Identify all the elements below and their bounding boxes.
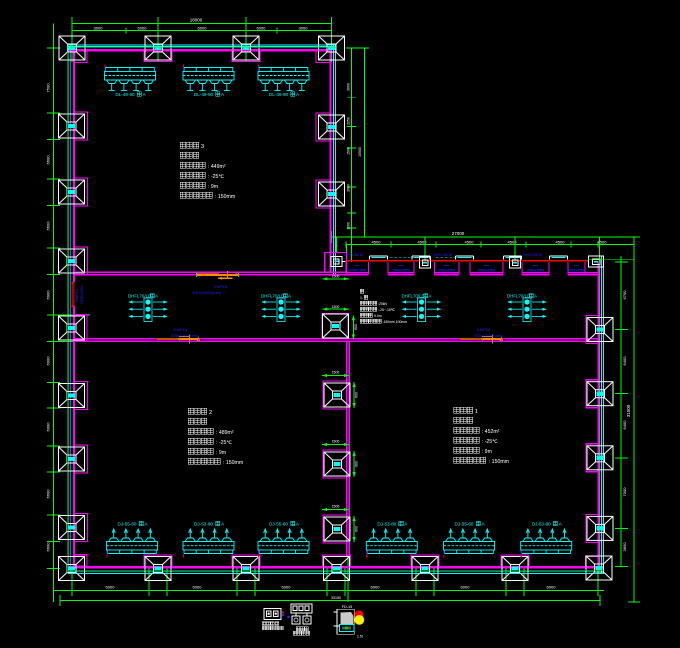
svg-text:▪▪▪▪: ▪▪▪▪ (398, 264, 403, 268)
svg-text:6400: 6400 (622, 356, 627, 366)
svg-text:: 489m²: : 489m² (216, 430, 234, 436)
svg-text:6000: 6000 (198, 25, 208, 30)
svg-text:600: 600 (355, 526, 359, 532)
svg-text:DL-49-90: DL-49-90 (269, 92, 289, 97)
svg-text:1500: 1500 (347, 147, 351, 155)
svg-text:6000: 6000 (461, 585, 471, 590)
svg-text:600: 600 (354, 324, 358, 330)
svg-text:DHFL70/LD: DHFL70/LD (402, 294, 425, 299)
svg-text:600: 600 (355, 392, 359, 398)
svg-text:3000: 3000 (94, 25, 104, 30)
svg-text:6000: 6000 (106, 585, 116, 590)
svg-text:DHFL70/LD: DHFL70/LD (128, 294, 151, 299)
svg-text:A: A (155, 294, 158, 299)
svg-text:2000x2500: 2000x2500 (438, 269, 456, 273)
svg-text:DHFL35/10: DHFL35/10 (433, 253, 452, 257)
svg-text:KMPD1: KMPD1 (214, 284, 229, 289)
svg-text:1500: 1500 (332, 440, 340, 444)
svg-text:33150: 33150 (331, 596, 341, 600)
svg-text:DJ-53-80: DJ-53-80 (532, 522, 551, 527)
svg-text:4500: 4500 (372, 239, 382, 244)
svg-text::20kN: :20kN (378, 302, 387, 306)
svg-text:3800: 3800 (622, 542, 627, 552)
svg-text:: 150mm: : 150mm (223, 460, 243, 466)
svg-text:: -25℃: : -25℃ (216, 440, 232, 446)
svg-text:▪▪▪▪: ▪▪▪▪ (444, 264, 449, 268)
svg-text:DHFL70/LD: DHFL70/LD (261, 294, 284, 299)
svg-text:6900: 6900 (46, 290, 51, 300)
svg-text:6600: 6600 (46, 542, 51, 552)
svg-text:DHFL35/10: DHFL35/10 (523, 253, 542, 257)
svg-text:2000x2500: 2000x2500 (392, 269, 410, 273)
svg-text:A: A (288, 294, 291, 299)
svg-text:2000x2500: 2000x2500 (348, 269, 366, 273)
svg-text:6000: 6000 (257, 25, 267, 30)
svg-text:DJ-55-60: DJ-55-60 (269, 522, 288, 527)
svg-text:1.: 1. (360, 296, 363, 300)
svg-text:4500: 4500 (598, 239, 608, 244)
svg-text:6000: 6000 (547, 585, 557, 590)
svg-text:31500: 31500 (626, 404, 631, 417)
svg-text:DJ-53-80: DJ-53-80 (377, 522, 396, 527)
svg-text:1.5t: 1.5t (357, 635, 363, 639)
svg-text:1500: 1500 (332, 275, 340, 279)
svg-text:▪▪▪▪: ▪▪▪▪ (533, 264, 538, 268)
svg-text:4500: 4500 (465, 239, 475, 244)
svg-text::: : (365, 290, 366, 294)
svg-text:1500x2500: 1500x2500 (80, 286, 84, 305)
svg-text:▪▪▪▪: ▪▪▪▪ (484, 264, 489, 268)
svg-text:: 150mm: : 150mm (489, 459, 509, 465)
svg-text:6000: 6000 (371, 585, 381, 590)
svg-text:3000: 3000 (299, 25, 309, 30)
svg-text:4500: 4500 (418, 239, 428, 244)
svg-text:FD-15: FD-15 (342, 605, 353, 609)
svg-text:1500: 1500 (332, 505, 340, 509)
svg-text:10500: 10500 (358, 147, 362, 157)
svg-text:: 452m²: : 452m² (482, 429, 500, 435)
svg-text:3000x2500(mm)~~: 3000x2500(mm)~~ (192, 290, 226, 295)
svg-text:600: 600 (355, 461, 359, 467)
svg-text:2000x2500: 2000x2500 (568, 269, 586, 273)
svg-text:3000: 3000 (347, 184, 351, 192)
svg-text:A: A (534, 294, 537, 299)
svg-text:3: 3 (201, 144, 204, 150)
svg-text:6000: 6000 (193, 585, 203, 590)
svg-text:3000: 3000 (347, 83, 351, 91)
svg-text:7500: 7500 (46, 83, 51, 93)
svg-text:KMPD1: KMPD1 (75, 288, 79, 301)
svg-text:DJ-53-80: DJ-53-80 (194, 522, 213, 527)
svg-text:6600: 6600 (46, 489, 51, 499)
svg-text:2000x2500(mm): 2000x2500(mm) (473, 333, 503, 338)
svg-text:1: 1 (475, 409, 478, 415)
svg-text:2000x2500(mm): 2000x2500(mm) (170, 333, 200, 338)
svg-text:7000: 7000 (622, 487, 627, 497)
svg-text:KMPD1: KMPD1 (477, 327, 492, 332)
svg-text:: 150mm: : 150mm (215, 194, 235, 200)
svg-text:▪▪▪▪: ▪▪▪▪ (574, 264, 579, 268)
svg-text:A: A (429, 294, 432, 299)
svg-text:2000x2500: 2000x2500 (527, 269, 545, 273)
svg-text:DL-49-90: DL-49-90 (115, 92, 135, 97)
svg-text:4500: 4500 (508, 239, 518, 244)
svg-text:6600: 6600 (46, 155, 51, 165)
svg-text:: -25℃: : -25℃ (208, 174, 224, 180)
svg-text:: 449m²: : 449m² (208, 164, 226, 170)
svg-text:6600: 6600 (46, 221, 51, 231)
svg-text:18000: 18000 (190, 18, 203, 23)
svg-text:1500: 1500 (332, 305, 340, 309)
svg-text:6000: 6000 (46, 422, 51, 432)
svg-text:DL-49-90: DL-49-90 (194, 92, 214, 97)
svg-text:: 9m: : 9m (208, 184, 218, 190)
svg-text:4500: 4500 (556, 239, 566, 244)
svg-text:27000: 27000 (452, 231, 465, 236)
svg-text::150mm,100mm: :150mm,100mm (383, 320, 408, 324)
svg-text:DJ-55-60: DJ-55-60 (455, 522, 474, 527)
svg-text:1200: 1200 (347, 222, 351, 230)
svg-text::-25~-18℃: :-25~-18℃ (378, 308, 395, 312)
svg-text:▪▪▪▪: ▪▪▪▪ (354, 264, 359, 268)
svg-text:KMPD1: KMPD1 (174, 327, 189, 332)
svg-text:6700: 6700 (622, 290, 627, 300)
svg-text:DHFL70/LD: DHFL70/LD (507, 294, 530, 299)
svg-text:: -25℃: : -25℃ (482, 439, 498, 445)
svg-text:1500: 1500 (332, 371, 340, 375)
svg-text:9.0m: 9.0m (374, 314, 382, 318)
svg-text:6400: 6400 (622, 420, 627, 430)
svg-text:6000: 6000 (46, 356, 51, 366)
svg-text:2250: 2250 (347, 117, 351, 125)
svg-text:: 9m: : 9m (482, 449, 492, 455)
svg-text:2: 2 (209, 410, 212, 416)
svg-text:: 9m: : 9m (216, 450, 226, 456)
svg-text:2000x2500: 2000x2500 (478, 269, 496, 273)
svg-text:6000: 6000 (282, 585, 292, 590)
svg-text:6000: 6000 (138, 25, 148, 30)
svg-text:DJ-55-60: DJ-55-60 (118, 522, 137, 527)
